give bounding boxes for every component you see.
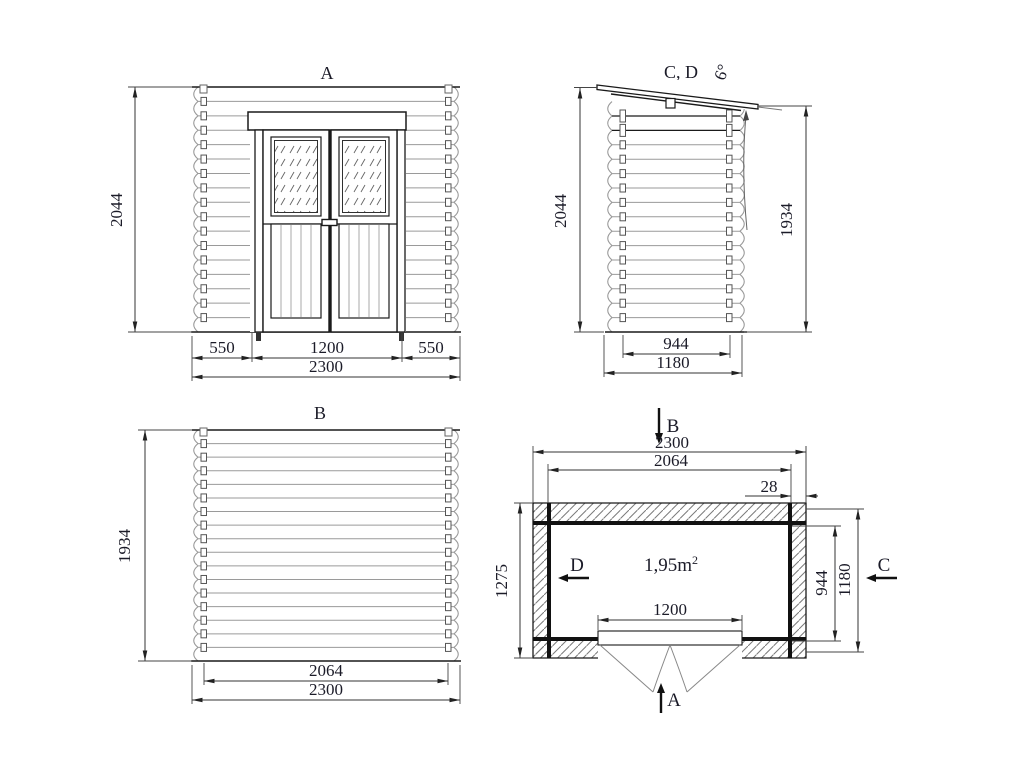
log-notch [446,589,452,597]
dim-front-total: 2300 [309,357,343,376]
log-notch [446,314,452,322]
log-notch [620,184,626,192]
log-notch [446,630,452,638]
log-notch [620,155,626,163]
log-notch [201,227,207,235]
view-label-front: A [321,63,334,83]
log-notch [446,453,452,461]
door-header [248,112,406,130]
glass-pane-left [275,141,317,212]
log-notch [620,256,626,264]
log-notch [201,126,207,134]
dim-plan-depth: 1275 [492,564,511,598]
door-jamb-right [397,130,405,332]
log-notch [727,314,733,322]
section-label-c: C [878,555,891,576]
log-notch [201,535,207,543]
log-notch [727,256,733,264]
log-notch [201,270,207,278]
door-foot-right [399,332,404,341]
dim-back-inner: 2064 [309,661,344,680]
log-notch [201,575,207,583]
roof-angle-label: 6° [710,62,733,83]
log-notch [727,285,733,293]
door-panel-left [271,224,321,318]
section-arrow-d-head [558,574,568,582]
dim-plan-inner: 2064 [654,451,689,470]
dim-side-total-width: 1180 [656,353,689,372]
dim-plan-door: 1200 [653,600,687,619]
log-notch [201,562,207,570]
log-ends-right [454,430,458,661]
dim-plan-total: 2300 [655,433,689,452]
log-notch [201,198,207,206]
log-notch [446,285,452,293]
log-notch [727,198,733,206]
log-notch [446,155,452,163]
door-swing-leaf-right [687,645,740,692]
door-foot-left [256,332,261,341]
log-ends-left [194,430,198,661]
door-panel-right [339,224,389,318]
back-elevation-view: B 1934 2064 2300 [115,403,461,699]
log-notch [201,256,207,264]
log-notch [446,242,452,250]
cad-drawing: A [0,0,1024,768]
dim-front-right: 550 [418,338,444,357]
log-ends-right [740,102,744,332]
log-notch [201,589,207,597]
drawing-sheet: A [0,0,1024,768]
log-ends-left [608,102,612,332]
floor-area-label: 1,95m2 [644,553,698,576]
log-notch [727,110,733,122]
corner-notch [445,428,452,436]
log-notch [446,270,452,278]
log-notch [201,285,207,293]
log-notch [446,440,452,448]
log-notch [446,575,452,583]
dim-plan-inner-depth: 944 [812,570,831,596]
log-notch [446,562,452,570]
log-notch [727,184,733,192]
log-notch [201,548,207,556]
log-notch [620,299,626,307]
log-notch [446,227,452,235]
dim-side-height-front: 2044 [551,194,570,229]
log-notch [620,242,626,250]
log-notch [727,170,733,178]
door-handle [322,220,337,226]
log-notch [446,643,452,651]
side-elevation-view: C, D 6° 2044 1934 944 1180 [551,62,796,372]
log-notch [446,508,452,516]
log-notch [446,126,452,134]
glass-pane-right [343,141,385,212]
log-notch [727,270,733,278]
door-swing-arc-right [670,645,687,692]
log-notch [727,299,733,307]
dim-plan-wall-thickness: 28 [761,477,778,496]
door-threshold [598,631,742,645]
log-notch [446,521,452,529]
dim-front-height: 2044 [107,193,126,228]
log-notch [446,213,452,221]
log-notch [446,299,452,307]
dim-back-height: 1934 [115,529,134,564]
wall-band-top [533,503,806,521]
log-notch [201,480,207,488]
view-label-back: B [314,403,326,423]
side-log-wall [597,80,782,332]
back-log-wall [191,428,461,661]
log-notch [201,508,207,516]
log-notch [201,643,207,651]
log-notch [201,155,207,163]
front-elevation-view: A [107,63,461,376]
log-ends-left [194,87,198,332]
log-notch [620,213,626,221]
corner-notch [445,85,452,93]
log-notch [446,603,452,611]
section-label-a: A [667,690,681,711]
dim-front-left: 550 [209,338,235,357]
log-notch [201,616,207,624]
log-notch [446,97,452,105]
log-notch [201,112,207,120]
double-door [248,112,406,341]
log-notch [727,141,733,149]
log-notch [620,110,626,122]
log-notch [446,256,452,264]
section-arrow-a-head [657,683,665,693]
log-notch [446,494,452,502]
log-notch [201,169,207,177]
log-notch [727,227,733,235]
view-label-side: C, D [664,62,698,82]
log-ends-right [454,87,458,332]
log-notch [620,227,626,235]
log-notch [620,270,626,278]
log-notch [201,314,207,322]
log-notch [727,124,733,136]
log-notch [201,467,207,475]
log-notch [446,480,452,488]
log-notch [727,242,733,250]
log-notch [620,314,626,322]
angle-leader [744,116,747,230]
roof-slope-extension [758,107,782,110]
log-notch [201,299,207,307]
log-notch [446,112,452,120]
log-notch [446,184,452,192]
log-notch [201,603,207,611]
log-notch [201,141,207,149]
log-notch [201,630,207,638]
log-notch [201,97,207,105]
corner-notch [200,85,207,93]
log-notch [727,155,733,163]
log-notch [201,440,207,448]
log-notch [201,494,207,502]
dim-side-roof-width: 944 [663,334,689,353]
log-notch [620,285,626,293]
dim-front-door: 1200 [310,338,344,357]
log-notch [446,548,452,556]
log-notch [446,616,452,624]
log-notch [201,242,207,250]
log-notch [201,521,207,529]
section-label-d: D [570,555,584,576]
log-notch [201,213,207,221]
dim-back-total: 2300 [309,680,343,699]
log-notch [446,169,452,177]
log-notch [620,170,626,178]
log-notch [446,141,452,149]
log-notch [446,198,452,206]
door-jamb-left [255,130,263,332]
dim-side-height-back: 1934 [777,203,796,238]
dimension-lines [128,87,864,704]
corner-notch [200,428,207,436]
log-notch [620,141,626,149]
log-notch [620,198,626,206]
section-arrow-c-head [866,574,876,582]
dim-plan-outer-depth: 1180 [835,563,854,596]
log-notch [446,467,452,475]
roof-batten-tab [666,99,675,109]
plan-view: B A D C 1,95m2 2300 2064 28 1275 1200 94… [492,408,897,713]
log-notch [727,213,733,221]
log-notch [201,184,207,192]
log-notch [620,124,626,136]
log-notch [446,535,452,543]
log-notch [201,453,207,461]
door-swing-leaf-left [600,645,653,692]
